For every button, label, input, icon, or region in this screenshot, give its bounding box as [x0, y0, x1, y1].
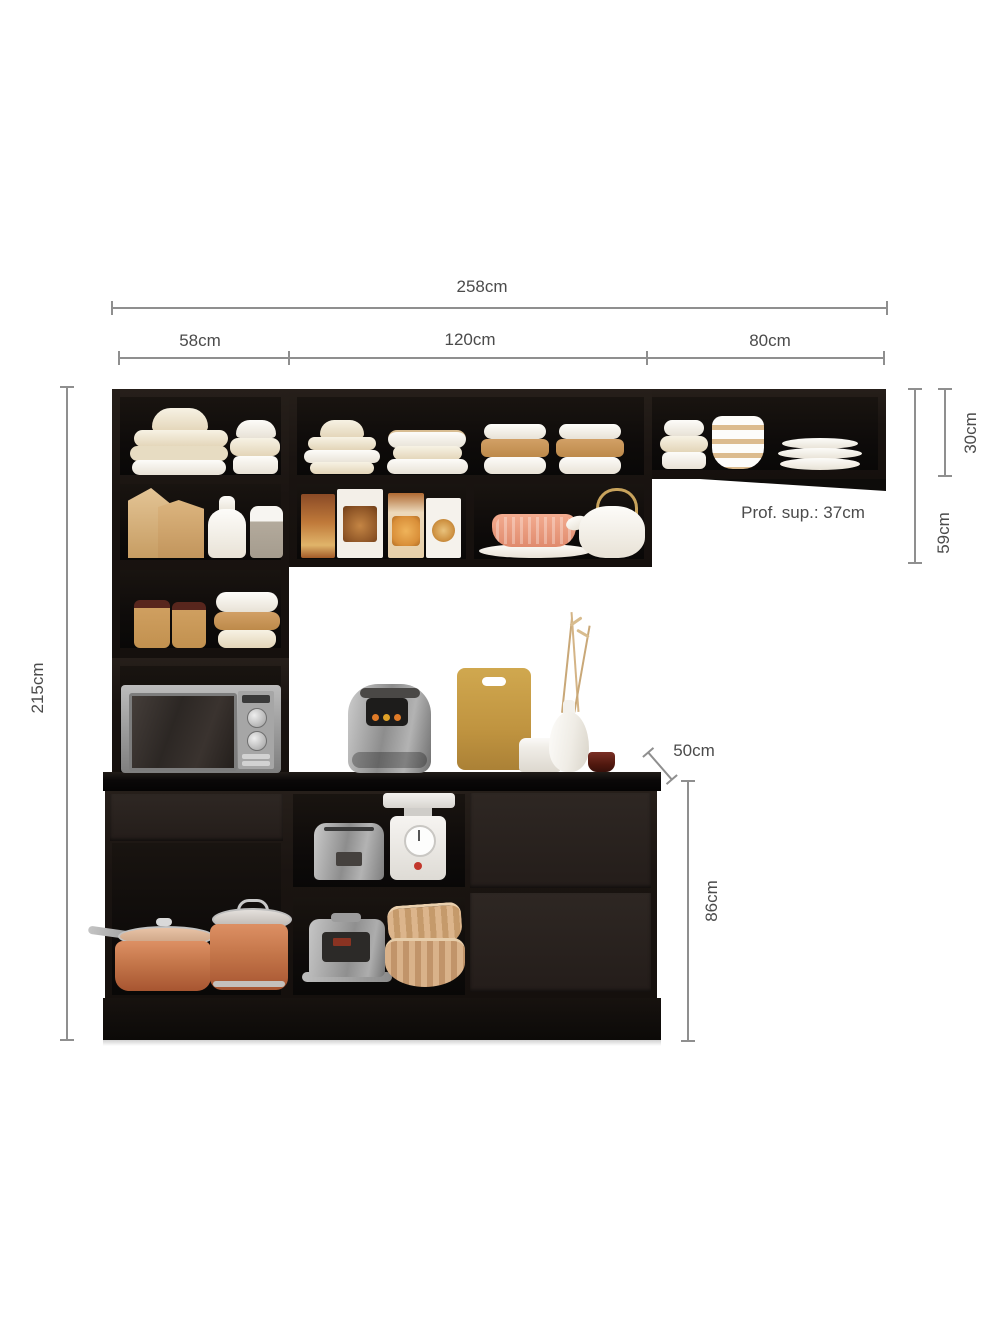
dim-cap — [908, 562, 922, 564]
dim-cap — [646, 351, 648, 365]
air-fryer-base — [352, 752, 427, 768]
microwave-door — [129, 693, 237, 771]
dim-label-base-depth: 50cm — [673, 741, 715, 761]
copper-pot-base — [213, 981, 285, 987]
toaster-slot — [324, 827, 374, 831]
air-fryer-light — [383, 714, 390, 721]
dim-cap — [908, 388, 922, 390]
plate-stack — [134, 430, 228, 447]
kraft-jar — [172, 602, 206, 648]
plate-stack — [152, 408, 208, 432]
banded-bowl-stack — [559, 457, 621, 474]
lidded-dish-stack — [308, 437, 376, 450]
bowl-stack — [214, 612, 280, 630]
base-right-drawer-bottom — [470, 893, 651, 992]
banded-bowl-stack — [559, 424, 621, 439]
lidded-dish-stack — [310, 462, 374, 474]
dim-line-right-upper-height — [944, 389, 946, 477]
banded-bowl-stack — [484, 424, 546, 439]
vase — [549, 712, 589, 772]
milk-bottle — [208, 509, 246, 558]
dim-cap — [938, 388, 952, 390]
dish-stack — [780, 458, 860, 470]
dim-line-total-width — [112, 307, 888, 309]
plate-stack — [132, 460, 226, 475]
dim-cap — [666, 774, 678, 785]
dim-cap — [60, 1039, 74, 1041]
striped-bowl — [712, 416, 764, 469]
bowl-stack — [664, 420, 704, 436]
bowl-stack — [233, 456, 278, 474]
air-fryer-handle — [360, 688, 420, 698]
kraft-bag — [158, 500, 204, 558]
kraft-jar — [134, 600, 170, 648]
kitchen-scale-button — [414, 862, 422, 870]
food-box-graphic — [432, 519, 455, 542]
toaster-panel — [336, 852, 362, 866]
bowl-stack — [387, 459, 468, 474]
dim-label-base-height: 86cm — [702, 880, 722, 922]
dim-line-total-height — [66, 387, 68, 1041]
dim-cap — [938, 475, 952, 477]
upper-right-cabinet-underside — [700, 479, 886, 491]
cutting-board-handle-hole — [482, 677, 506, 686]
dim-cap — [681, 1040, 695, 1042]
bowl-stack — [216, 592, 278, 612]
air-fryer-display — [366, 698, 408, 726]
kitchen-scale-platform — [383, 793, 455, 808]
banded-bowl-stack — [481, 439, 549, 457]
teapot — [579, 506, 645, 558]
microwave-display — [242, 695, 270, 703]
storage-canister — [250, 506, 283, 558]
wooden-bowl — [385, 938, 465, 987]
bowl-stack — [236, 420, 276, 438]
air-fryer-light — [394, 714, 401, 721]
dim-label-left-width: 58cm — [179, 331, 221, 351]
microwave-button — [242, 761, 270, 766]
food-box-graphic — [392, 516, 420, 546]
bowl-stack — [218, 630, 276, 648]
dim-cap — [111, 301, 113, 315]
microwave-knob — [247, 708, 267, 728]
dim-cap — [118, 351, 120, 365]
dim-line-upper-height — [914, 389, 916, 564]
food-box — [301, 494, 335, 558]
dim-cap — [886, 301, 888, 315]
product-dimension-diagram: 258cm 58cm 120cm 80cm 215cm 59cm 30cm Pr… — [0, 0, 1000, 1333]
dim-label-total-height: 215cm — [28, 662, 48, 713]
rice-cooker-panel — [322, 932, 370, 962]
pink-bowl-ridges — [496, 517, 572, 544]
kitchen-scale-needle — [418, 830, 420, 841]
microwave-knob — [247, 731, 267, 751]
banded-bowl-stack — [484, 457, 546, 474]
banded-bowl-stack — [556, 439, 624, 457]
dim-line-section-widths — [119, 357, 885, 359]
dim-label-upper-height: 59cm — [934, 512, 954, 554]
base-left-drawer — [110, 794, 283, 841]
dim-label-right-width: 80cm — [749, 331, 791, 351]
lidded-dish-stack — [320, 420, 364, 438]
microwave-button — [242, 754, 270, 759]
dim-label-upper-depth: Prof. sup.: 37cm — [741, 503, 865, 523]
kitchen-scale-stem — [404, 808, 432, 816]
saucepan-lid-knob — [156, 918, 172, 926]
bowl-stack — [662, 452, 706, 469]
dim-cap — [60, 386, 74, 388]
kitchen-scale-dial — [404, 825, 436, 857]
food-box-graphic — [343, 506, 377, 542]
air-fryer-light — [372, 714, 379, 721]
dim-label-total-width: 258cm — [456, 277, 507, 297]
dim-line-base-height — [687, 781, 689, 1042]
bowl-stack — [393, 446, 462, 460]
dim-label-right-upper-height: 30cm — [961, 412, 981, 454]
dim-cap — [883, 351, 885, 365]
rice-cooker-display — [333, 938, 351, 946]
rice-cooker-lid-handle — [331, 913, 361, 922]
floor-shadow — [103, 1040, 661, 1046]
red-glass — [588, 752, 615, 772]
dim-label-middle-width: 120cm — [444, 330, 495, 350]
copper-saucepan — [115, 941, 211, 991]
bowl-stack — [230, 438, 280, 456]
plinth — [103, 998, 661, 1040]
plate-stack — [130, 446, 228, 461]
countertop — [103, 772, 661, 791]
dim-cap — [642, 747, 654, 758]
dim-cap — [288, 351, 290, 365]
base-right-drawer-top — [470, 793, 651, 888]
dim-cap — [681, 780, 695, 782]
bowl-stack — [660, 436, 708, 452]
